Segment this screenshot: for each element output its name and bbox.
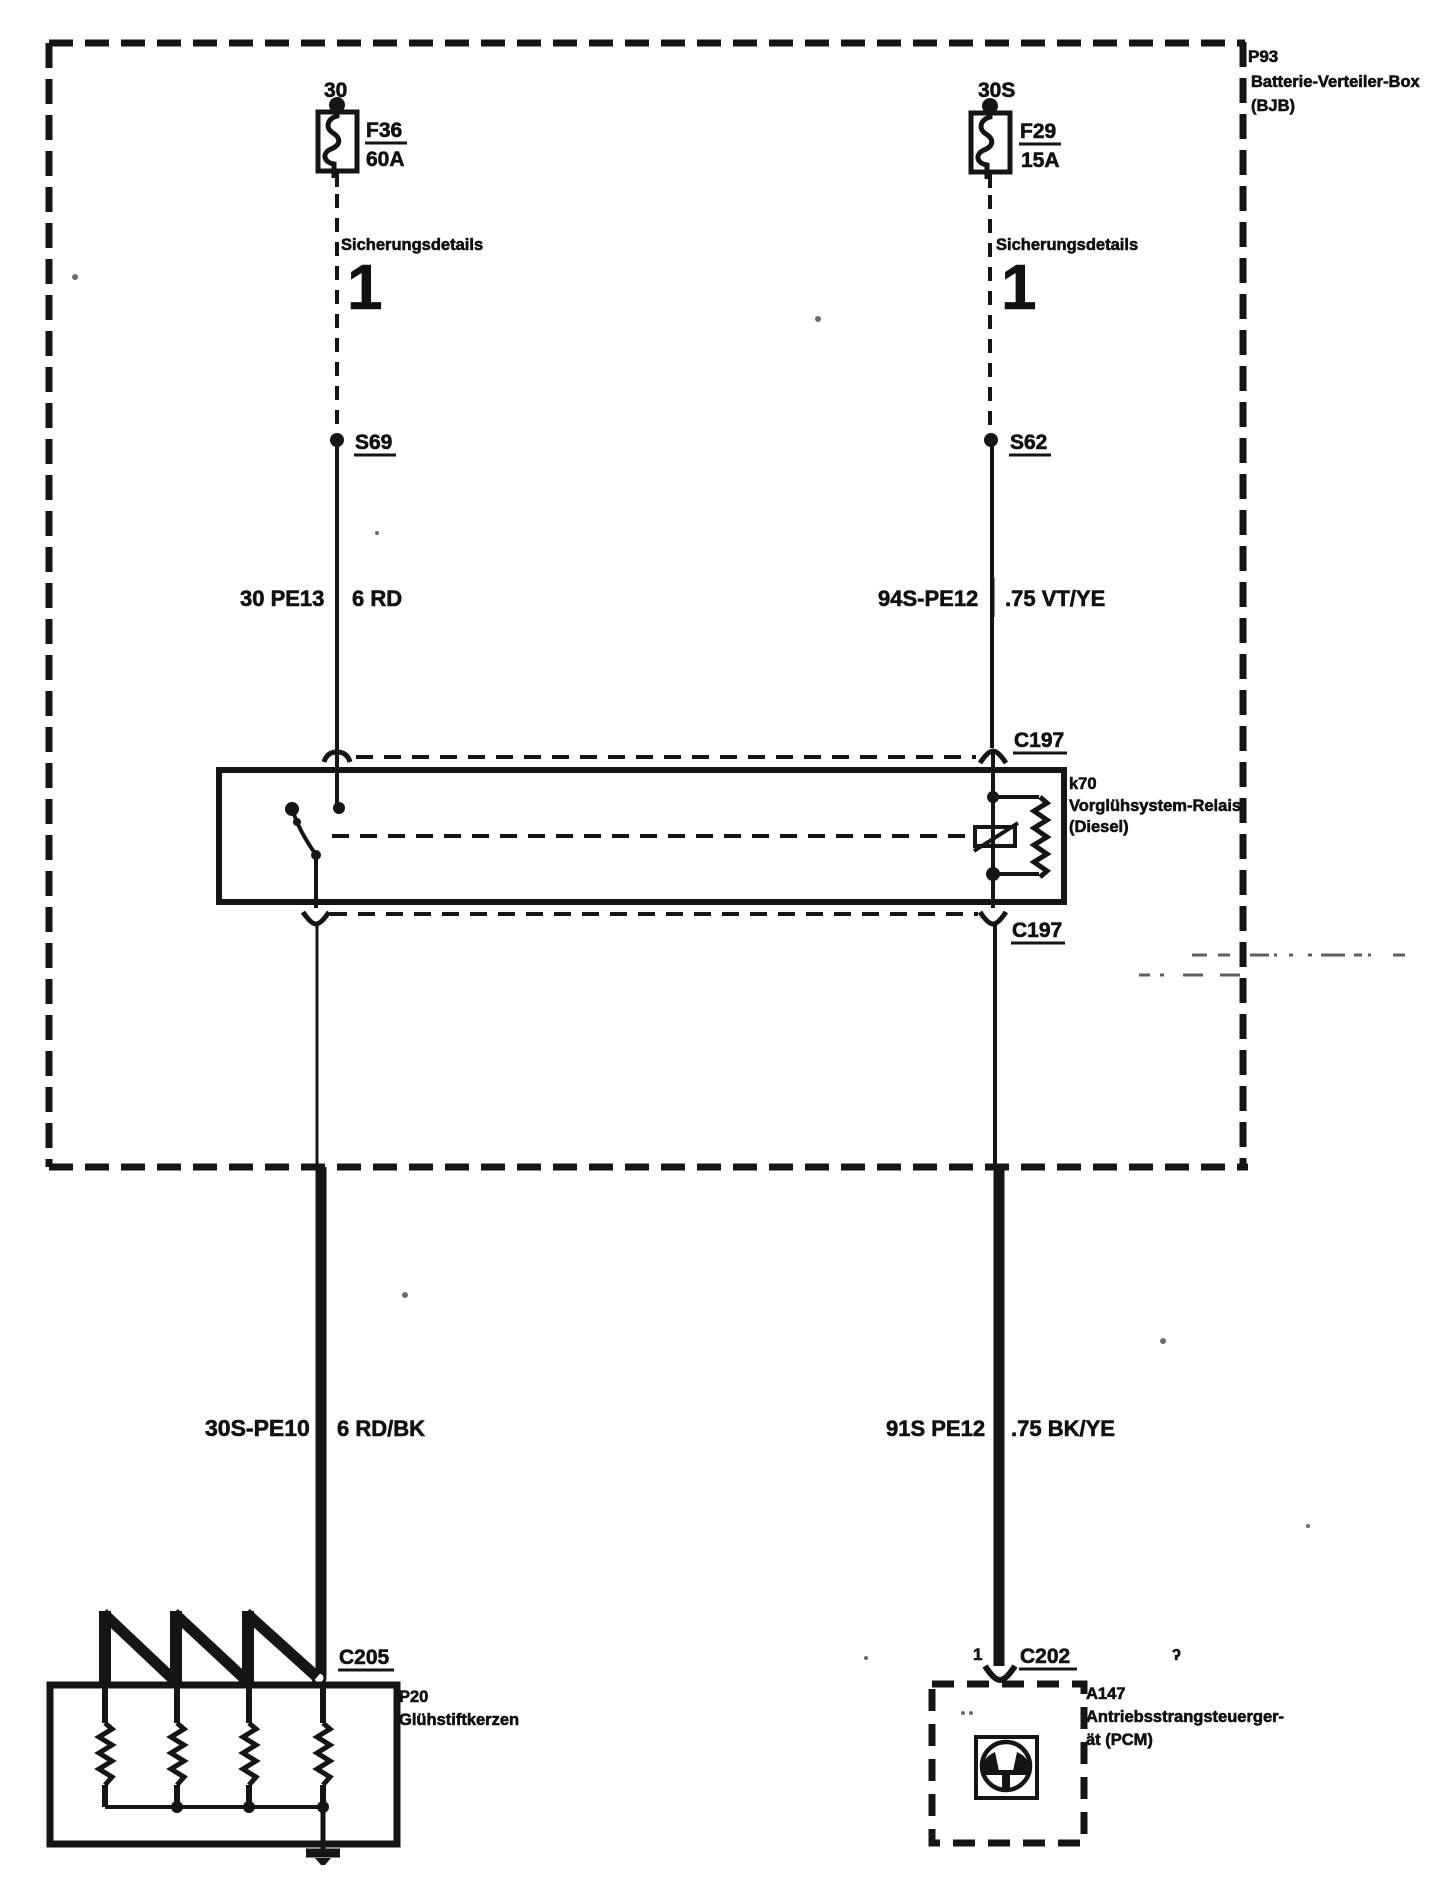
svg-text:C197: C197 bbox=[1012, 919, 1062, 942]
svg-text:30S-PE10: 30S-PE10 bbox=[205, 1415, 310, 1441]
svg-text:30 PE13: 30 PE13 bbox=[240, 586, 324, 611]
svg-text:ʔ: ʔ bbox=[1172, 1647, 1181, 1664]
svg-text:ät (PCM): ät (PCM) bbox=[1086, 1731, 1153, 1749]
svg-text:(Diesel): (Diesel) bbox=[1069, 818, 1129, 836]
svg-text:Glühstiftkerzen: Glühstiftkerzen bbox=[399, 1711, 519, 1729]
svg-text:P20: P20 bbox=[399, 1688, 428, 1706]
svg-text:C205: C205 bbox=[339, 1646, 390, 1669]
svg-text:A147: A147 bbox=[1086, 1685, 1125, 1703]
svg-text:1: 1 bbox=[1001, 251, 1037, 323]
svg-text:k70: k70 bbox=[1069, 775, 1097, 793]
svg-text:91S PE12: 91S PE12 bbox=[886, 1416, 985, 1441]
svg-text:60A: 60A bbox=[366, 148, 405, 171]
svg-text:1: 1 bbox=[973, 1645, 982, 1664]
svg-text:S62: S62 bbox=[1010, 431, 1047, 454]
svg-text:6 RD/BK: 6 RD/BK bbox=[337, 1416, 425, 1441]
svg-text:(BJB): (BJB) bbox=[1251, 97, 1295, 115]
svg-text:.75 VT/YE: .75 VT/YE bbox=[1005, 586, 1105, 611]
svg-text:F36: F36 bbox=[366, 119, 402, 142]
svg-text:C197: C197 bbox=[1014, 729, 1064, 752]
svg-text:P93: P93 bbox=[1248, 47, 1278, 66]
svg-text:1: 1 bbox=[347, 251, 383, 323]
svg-text:Antriebsstrangsteuerger-: Antriebsstrangsteuerger- bbox=[1086, 1708, 1284, 1726]
svg-text:C202: C202 bbox=[1020, 1645, 1070, 1668]
svg-text:Vorglühsystem-Relais: Vorglühsystem-Relais bbox=[1069, 797, 1241, 815]
svg-text:Batterie-Verteiler-Box: Batterie-Verteiler-Box bbox=[1251, 73, 1421, 91]
svg-text:F29: F29 bbox=[1020, 120, 1056, 143]
svg-text:S69: S69 bbox=[355, 431, 392, 454]
svg-text:6 RD: 6 RD bbox=[352, 586, 402, 611]
svg-text:15A: 15A bbox=[1021, 149, 1060, 172]
svg-text:.75 BK/YE: .75 BK/YE bbox=[1011, 1416, 1115, 1441]
svg-text:30S: 30S bbox=[978, 79, 1015, 102]
svg-text:94S-PE12: 94S-PE12 bbox=[878, 586, 978, 611]
